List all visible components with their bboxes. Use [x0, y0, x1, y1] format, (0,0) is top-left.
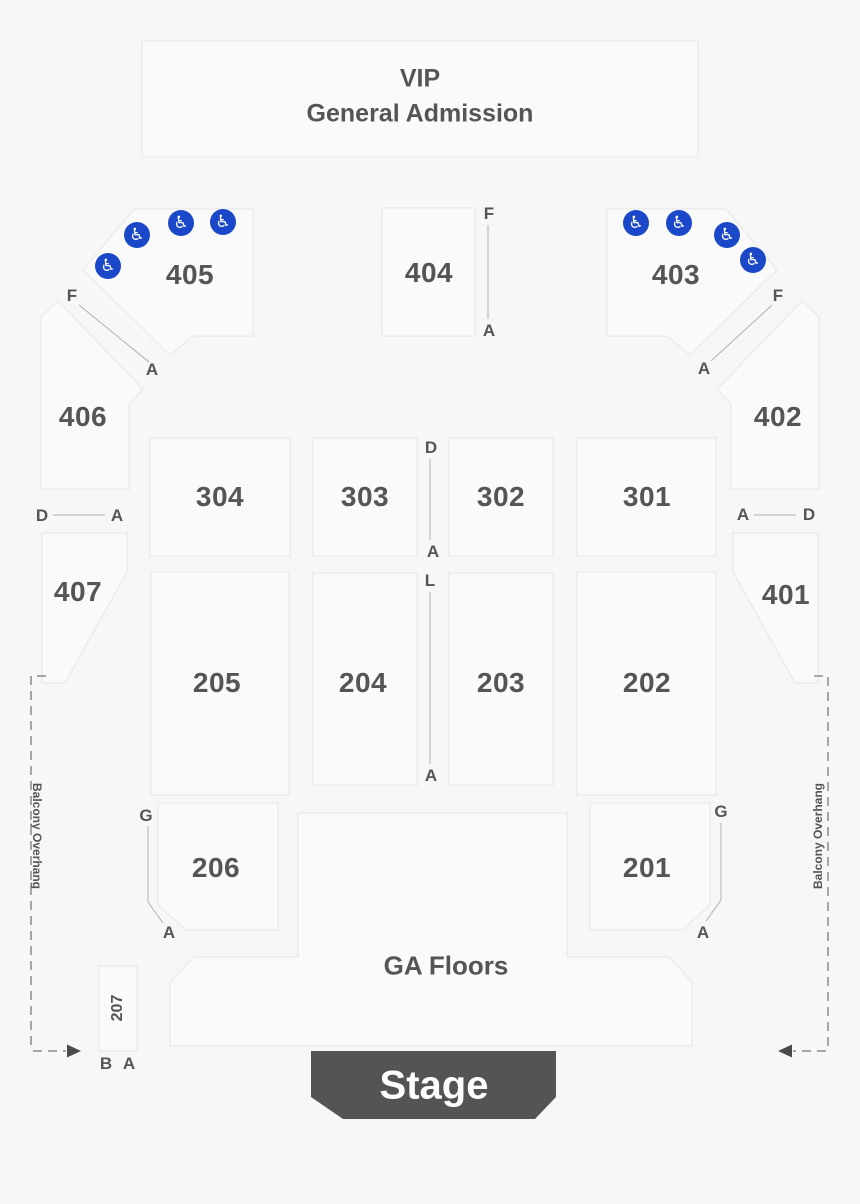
section-202-label: 202	[623, 667, 671, 699]
row-letter-a: A	[163, 923, 175, 943]
wheelchair-icon[interactable]: ♿	[95, 253, 121, 279]
wheelchair-icon[interactable]: ♿	[124, 222, 150, 248]
row-letter-a: A	[146, 360, 158, 380]
row-letter-f: F	[484, 204, 494, 224]
section-405-label: 405	[166, 259, 214, 291]
row-letter-a: A	[425, 766, 437, 786]
ga-floors-label: GA Floors	[384, 951, 509, 982]
vip-title: VIP	[400, 65, 440, 94]
section-406-shape[interactable]	[41, 301, 143, 489]
balcony-overhang-label-left: Balcony Overhang	[30, 783, 44, 889]
section-401-label: 401	[762, 579, 810, 611]
section-404-label: 404	[405, 257, 453, 289]
wheelchair-icon[interactable]: ♿	[666, 210, 692, 236]
row-letter-d: D	[425, 438, 437, 458]
section-302-label: 302	[477, 481, 525, 513]
row-letter-a: A	[427, 542, 439, 562]
section-206-label: 206	[192, 852, 240, 884]
row-letter-a: A	[483, 321, 495, 341]
wheelchair-icon[interactable]: ♿	[740, 247, 766, 273]
row-letter-f: F	[67, 286, 77, 306]
row-letter-a: A	[698, 359, 710, 379]
row-letter-g: G	[714, 802, 727, 822]
section-303-label: 303	[341, 481, 389, 513]
section-207-label: 207	[109, 995, 127, 1022]
section-205-label: 205	[193, 667, 241, 699]
seating-chart: VIP General Admission 405 404 403 406 40…	[0, 0, 860, 1204]
row-letter-a: A	[123, 1054, 135, 1074]
section-204-label: 204	[339, 667, 387, 699]
wheelchair-icon[interactable]: ♿	[168, 210, 194, 236]
row-letter-b: B	[100, 1054, 112, 1074]
section-403-label: 403	[652, 259, 700, 291]
row-letter-a: A	[697, 923, 709, 943]
row-letter-d: D	[36, 506, 48, 526]
section-301-label: 301	[623, 481, 671, 513]
wheelchair-icon[interactable]: ♿	[714, 222, 740, 248]
row-letter-f: F	[773, 286, 783, 306]
section-402-label: 402	[754, 401, 802, 433]
stage-label: Stage	[380, 1064, 489, 1109]
row-letter-l: L	[425, 571, 435, 591]
row-letter-a: A	[111, 506, 123, 526]
section-402-shape[interactable]	[717, 301, 819, 489]
row-letter-a: A	[737, 505, 749, 525]
section-203-label: 203	[477, 667, 525, 699]
row-letter-d: D	[803, 505, 815, 525]
section-201-label: 201	[623, 852, 671, 884]
balcony-overhang-label-right: Balcony Overhang	[811, 783, 825, 889]
arrow-left-icon	[778, 1045, 792, 1058]
row-letter-g: G	[139, 806, 152, 826]
arrow-right-icon	[67, 1045, 81, 1058]
section-304-label: 304	[196, 481, 244, 513]
section-407-shape[interactable]	[42, 533, 127, 683]
section-406-label: 406	[59, 401, 107, 433]
section-407-label: 407	[54, 576, 102, 608]
wheelchair-icon[interactable]: ♿	[210, 209, 236, 235]
venue-map-shapes	[0, 0, 860, 1204]
vip-subtitle: General Admission	[307, 100, 534, 129]
wheelchair-icon[interactable]: ♿	[623, 210, 649, 236]
